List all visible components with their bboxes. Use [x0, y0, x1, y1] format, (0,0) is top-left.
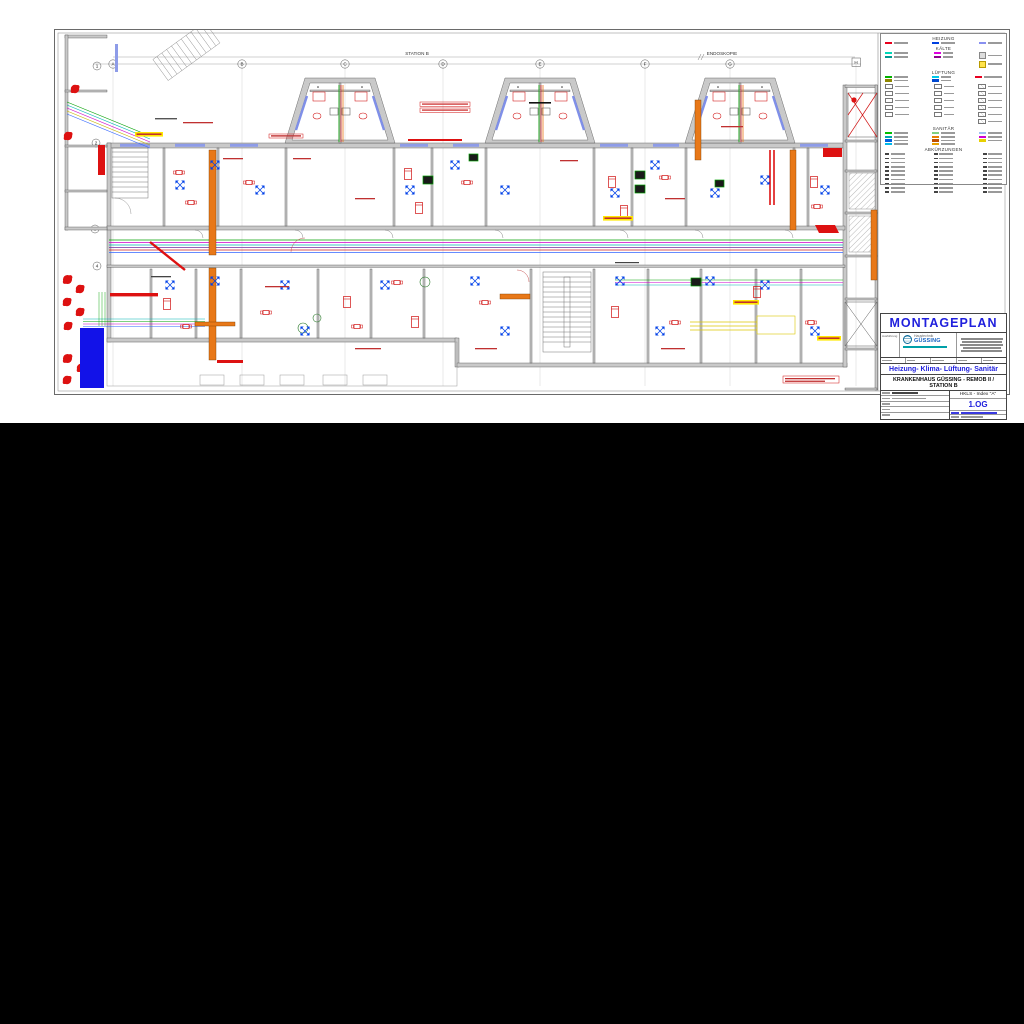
stair-diagonal: [153, 30, 220, 81]
floor-plan: A B C D E F G H 1 2 3 4 STATION B ENDOSK…: [55, 30, 1009, 394]
svg-text:1: 1: [96, 64, 99, 69]
shaft-hatch: [849, 173, 875, 209]
trade-subtitle: Heizung- Klima- Lüftung- Sanitär: [881, 364, 1006, 375]
swatch-heizung-vl: [885, 42, 892, 44]
company-logo: Haustechnik GÜSSING: [900, 333, 957, 357]
company-name: GÜSSING: [914, 339, 941, 345]
grid-lines: [113, 64, 856, 386]
shaft-xbox: [845, 302, 877, 346]
air-diffusers: [166, 161, 829, 335]
endoskopie-label: ENDOSKOPIE: [707, 51, 737, 56]
sheet-title: MONTAGEPLAN: [881, 314, 1006, 333]
company-globe-icon: [903, 335, 912, 344]
title-block: MONTAGEPLAN Ausführung Haustechnik GÜSSI…: [880, 313, 1007, 420]
terrace: [107, 342, 457, 386]
swatch-heizung-rl: [932, 42, 939, 44]
legend-heading-kaelte: KÄLTE: [881, 46, 1006, 51]
svg-text:F: F: [644, 62, 647, 67]
index-label: HKLS - Index "A": [950, 391, 1006, 399]
legend-heading-abkuerzungen: ABKÜRZUNGEN: [881, 147, 1006, 152]
legend-heading-lueftung: LÜFTUNG: [881, 70, 1006, 75]
stair-center: [543, 272, 591, 352]
company-address: [957, 333, 1006, 357]
company-tagline: [903, 346, 947, 348]
blue-area: [80, 328, 104, 388]
kaelte-unit-highlight-icon: [979, 61, 986, 68]
svg-text:B: B: [240, 62, 243, 67]
legend: HEIZUNG KÄLTE: [880, 33, 1007, 185]
bay-risers: [339, 85, 743, 142]
walls: [65, 35, 878, 390]
sheet-right-panel: HEIZUNG KÄLTE: [880, 32, 1006, 392]
svg-text:E: E: [538, 62, 541, 67]
legend-heading-sanitaer: SANITÄR: [881, 126, 1006, 131]
floor-label: 1.OG: [950, 399, 1006, 411]
grid-letter-bubbles: A B C D E F G H 1 2 3 4: [91, 58, 860, 270]
project-name: KRANKENHAUS GÜSSING - REMOB II / STATION…: [881, 375, 1006, 391]
yellow-ducts: [690, 316, 795, 334]
svg-text:G: G: [728, 62, 732, 67]
viewer-canvas: A B C D E F G H 1 2 3 4 STATION B ENDOSK…: [0, 0, 1024, 423]
furniture: [164, 169, 823, 334]
drawing-sheet: A B C D E F G H 1 2 3 4 STATION B ENDOSK…: [55, 30, 1009, 394]
station-b-label: STATION B: [405, 51, 429, 56]
legend-heading-heizung: HEIZUNG: [881, 36, 1006, 41]
endoskopie-corner: [848, 93, 877, 137]
revision-table: [881, 391, 950, 419]
stair-left: [112, 148, 148, 198]
windows: [115, 44, 828, 147]
drawn-by: [950, 415, 1006, 418]
svg-text:4: 4: [96, 264, 99, 269]
ausfuehrung-label: Ausführung: [881, 333, 900, 357]
kaelte-unit-icon: [979, 52, 986, 59]
swatch-heizkoerper: [979, 42, 986, 44]
svg-text:H: H: [854, 60, 857, 65]
